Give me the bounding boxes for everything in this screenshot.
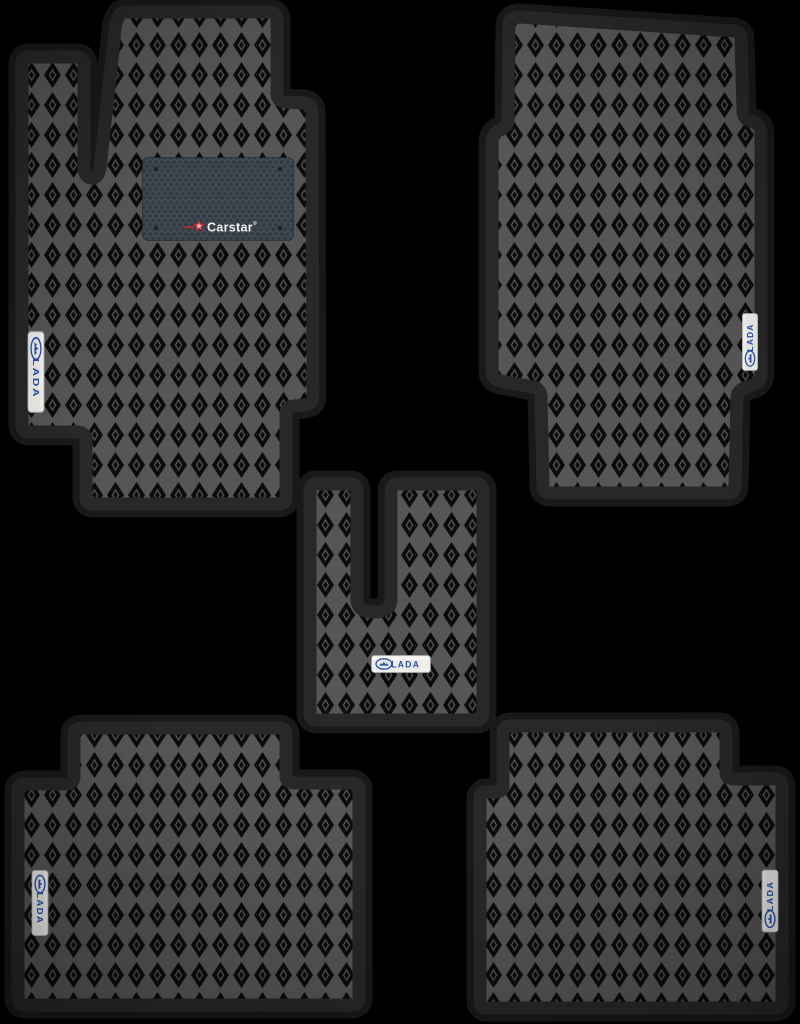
vignette-overlay: [0, 0, 800, 1024]
car-mats-product-photo: Carstar ® LADA LADA: [0, 0, 800, 1024]
mats-scene: Carstar ® LADA LADA: [0, 0, 800, 1024]
